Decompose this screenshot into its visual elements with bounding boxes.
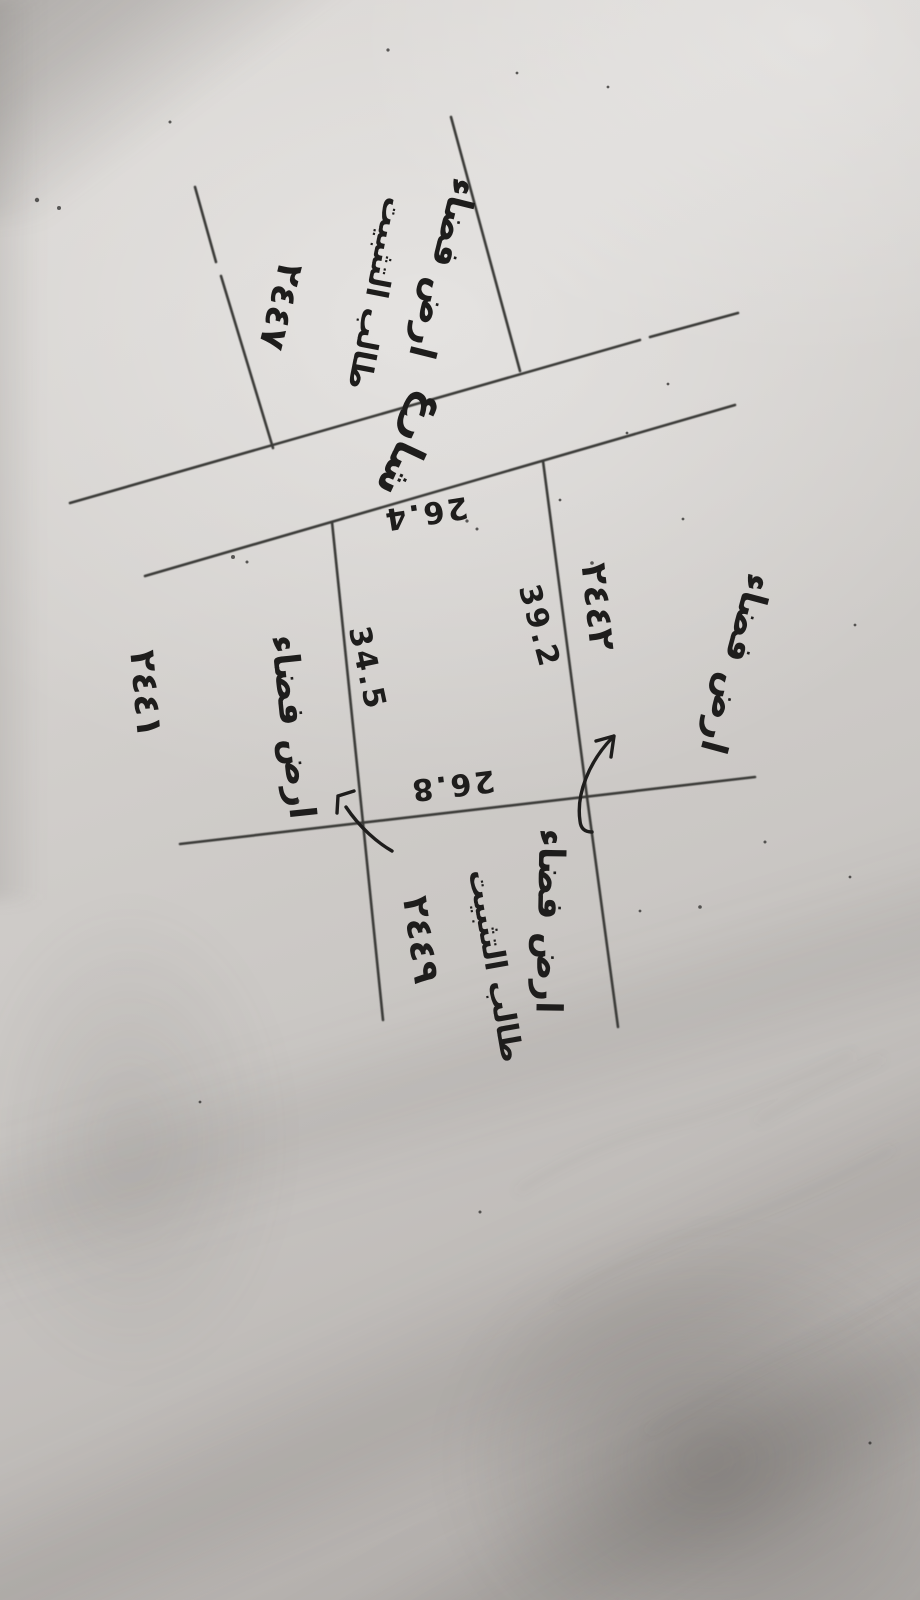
curved-arrow-left-head-icon bbox=[337, 791, 354, 813]
curved-arrow-right-icon bbox=[579, 738, 612, 832]
plot-left-edge-extension bbox=[363, 823, 383, 1020]
parcel-bottom-claimant: طالب التثبيت bbox=[461, 867, 529, 1065]
parcel-bottom-number: ٢٤٤٩ bbox=[394, 893, 447, 986]
parcel-bottomleft-number: ٢٤٤١ bbox=[121, 648, 170, 739]
street-label: شارع bbox=[366, 385, 457, 505]
measurement-left-side: 34.5 bbox=[341, 623, 393, 714]
parcel-right-landtype: ارض فضاء bbox=[692, 569, 779, 758]
measurement-right-side: 39.2 bbox=[511, 581, 567, 673]
curved-arrow-left-icon bbox=[346, 807, 392, 851]
parcel-right-number: ٢٤٤٢ bbox=[573, 561, 623, 653]
ink-bleed-through bbox=[520, 1055, 920, 1430]
topleft-boundary-line bbox=[195, 187, 216, 262]
parcel-bottomleft-landtype: ارض فضاء bbox=[262, 633, 322, 821]
road-upper-edge-line-continuation bbox=[650, 313, 738, 337]
measurement-bottom-side: 26.8 bbox=[407, 762, 497, 807]
parcel-topleft-number: ٢٤٤٧ bbox=[250, 259, 311, 354]
parcel-topleft-claimant: طالب التثبيت bbox=[340, 194, 412, 392]
photographed-survey-sketch: 26.4 39.2 34.5 26.8 شارع ارض فضاء طالب ا… bbox=[0, 0, 920, 1600]
parcel-bottom-landtype: ارض فضاء bbox=[527, 828, 571, 1014]
plot-sketch-drawing: 26.4 39.2 34.5 26.8 شارع ارض فضاء طالب ا… bbox=[0, 0, 920, 1600]
parcel-topleft-landtype: ارض فضاء bbox=[400, 174, 485, 363]
